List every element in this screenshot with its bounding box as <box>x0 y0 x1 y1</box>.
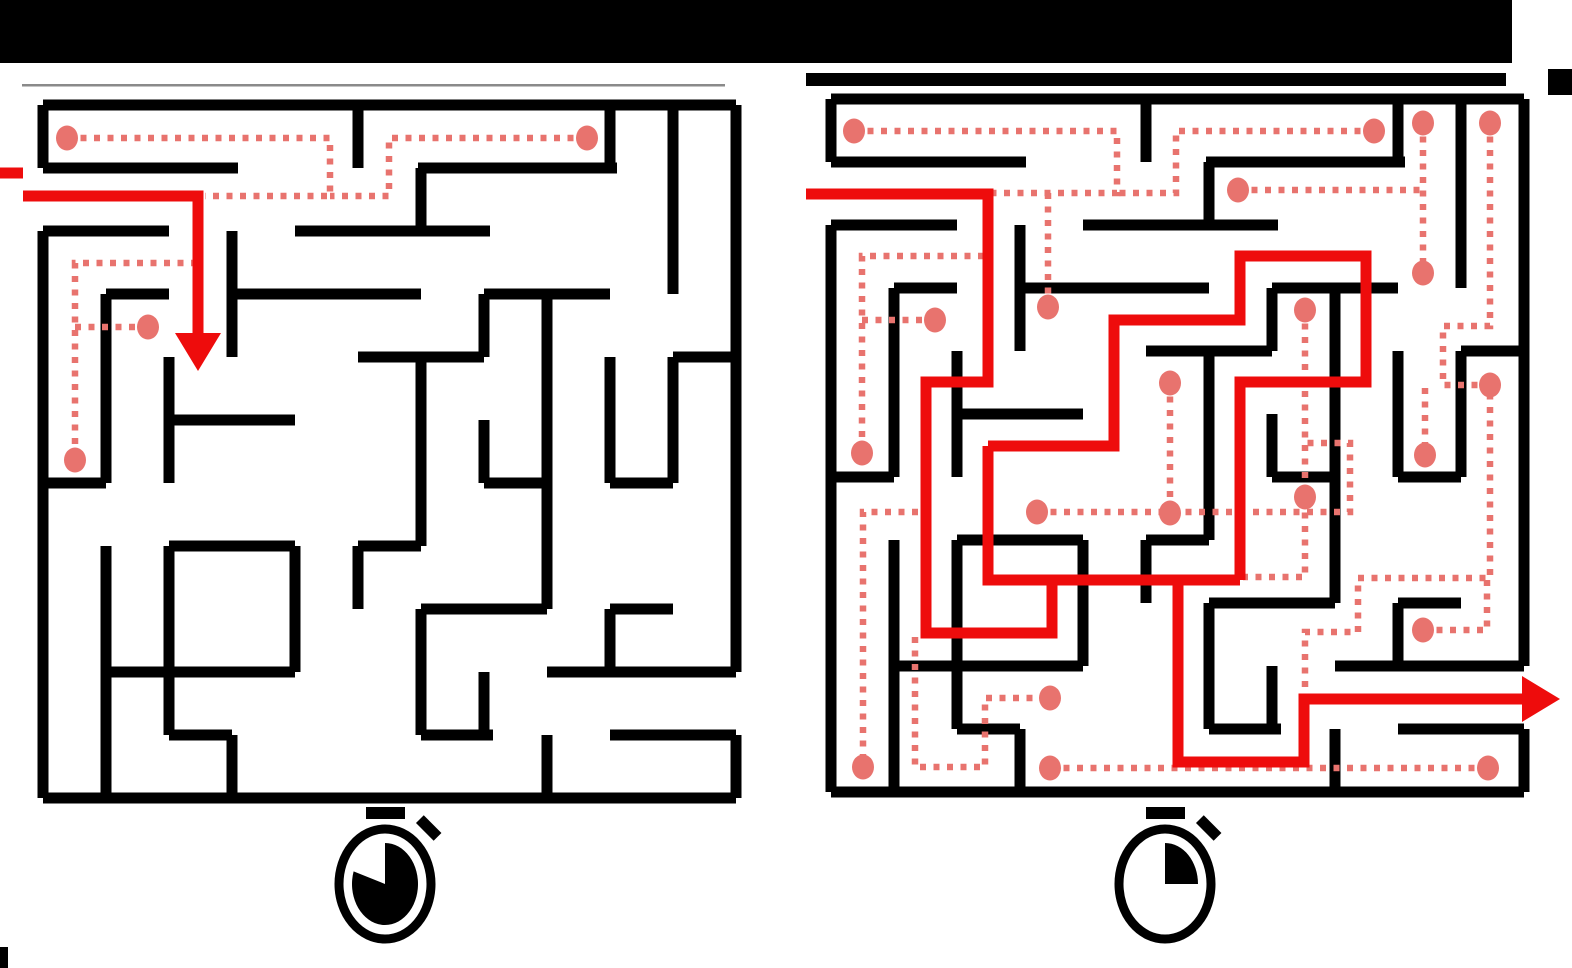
explore-endpoint-dot <box>1363 119 1385 144</box>
explore-endpoint-dot <box>1412 261 1434 286</box>
explore-endpoint-dot <box>1037 295 1059 320</box>
explore-endpoint-dot <box>851 441 873 466</box>
stopwatch-side-button <box>1196 815 1221 840</box>
bottom-left-tab <box>0 947 8 968</box>
solution-arrowhead-icon <box>175 333 221 371</box>
stopwatch-elapsed-pie <box>1165 843 1198 884</box>
stopwatch-icon-right <box>1119 807 1221 939</box>
stopwatch-side-button <box>416 815 441 840</box>
right-maze-separator-line <box>806 73 1506 86</box>
explore-endpoint-dot <box>56 126 78 151</box>
left-maze-separator-line <box>22 84 725 87</box>
maze-right-solved <box>806 99 1560 792</box>
top-bar <box>0 0 1512 63</box>
explore-endpoint-dot <box>852 755 874 780</box>
explore-endpoint-dot <box>1227 178 1249 203</box>
explore-endpoint-dot <box>924 308 946 333</box>
explore-endpoint-dot <box>1039 686 1061 711</box>
maze-comparison-figure <box>0 0 1572 968</box>
explore-trace <box>915 637 1050 767</box>
explore-endpoint-dot <box>576 126 598 151</box>
explore-endpoint-dot <box>1412 618 1434 643</box>
explore-endpoint-dot <box>1039 756 1061 781</box>
explore-endpoint-dot <box>1294 298 1316 323</box>
solution-arrowhead-icon <box>1522 676 1560 722</box>
explore-endpoint-dot <box>1414 443 1436 468</box>
explore-endpoint-dot <box>1159 371 1181 396</box>
stopwatch-button <box>1146 807 1185 819</box>
explore-endpoint-dot <box>1412 111 1434 136</box>
top-right-corner-mark <box>1548 69 1572 95</box>
maze-walls <box>43 105 736 798</box>
explore-endpoint-dot <box>843 119 865 144</box>
explore-endpoint-dot <box>1477 756 1499 781</box>
explore-endpoint-dot <box>1026 500 1048 525</box>
explore-endpoint-dot <box>1479 373 1501 398</box>
explore-endpoint-dot <box>137 315 159 340</box>
stopwatch-button <box>366 807 405 819</box>
explore-endpoint-dot <box>1159 501 1181 526</box>
explore-endpoint-dot <box>64 448 86 473</box>
figure-canvas <box>0 0 1572 968</box>
stopwatch-icon-left <box>339 807 441 939</box>
stopwatch-elapsed-pie <box>352 843 418 925</box>
maze-left-unsolved <box>0 105 736 798</box>
explore-endpoint-dot <box>1294 485 1316 510</box>
explore-endpoint-dot <box>1479 111 1501 136</box>
